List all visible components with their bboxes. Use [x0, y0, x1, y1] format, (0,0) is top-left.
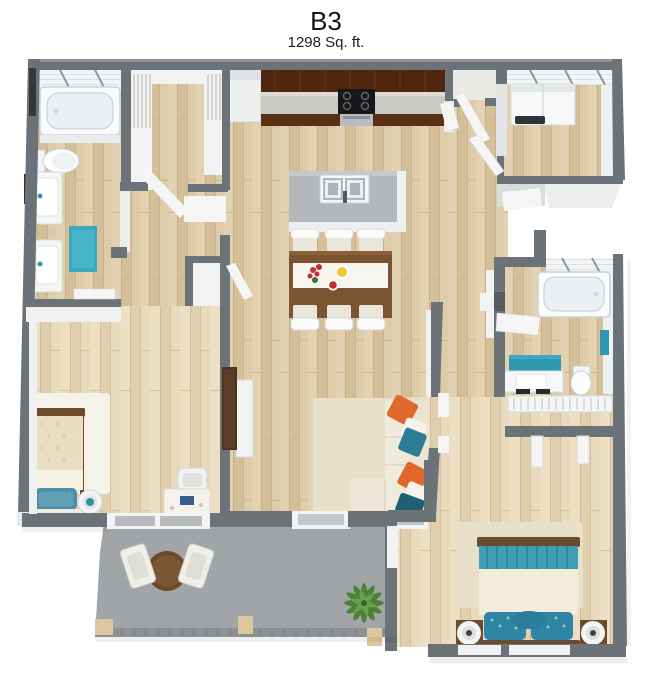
svg-text:1298 Sq. ft.: 1298 Sq. ft.	[288, 34, 365, 51]
svg-text:B3: B3	[310, 6, 342, 36]
